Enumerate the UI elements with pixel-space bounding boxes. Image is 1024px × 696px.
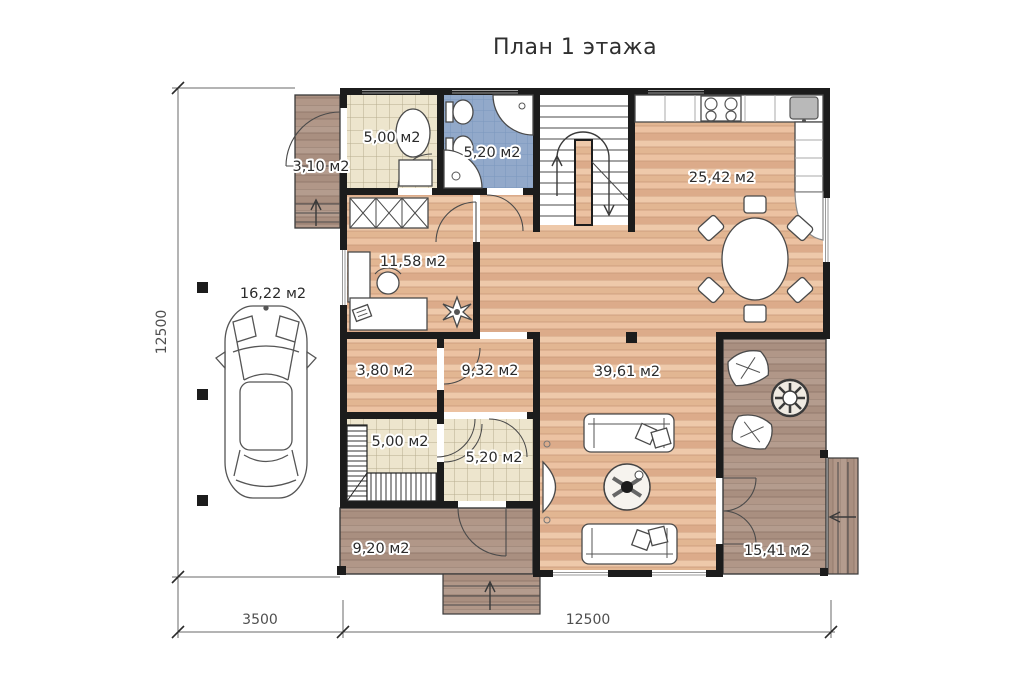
room-label-carport: 16,22 м2: [240, 286, 306, 302]
carport-post: [197, 282, 208, 293]
utility-fixtures: [396, 109, 432, 186]
sofa-top: [584, 414, 674, 452]
room-label-office: 11,58 м2: [380, 254, 446, 270]
window-dining: [826, 198, 829, 262]
back-steps: [443, 574, 540, 614]
carport-post: [197, 495, 208, 506]
sofa-bottom: [582, 524, 677, 564]
room-label-terrace-front: 15,41 м2: [744, 543, 810, 559]
desk-side: [348, 252, 370, 302]
floor-plan-drawing: 3,10 м2 5,00 м2 5,20 м2 25,42 м2 11,58 м…: [0, 0, 1024, 696]
dim-house-width: 12500: [566, 612, 611, 628]
dim-total-depth: 12500: [154, 310, 170, 355]
carport-post: [197, 389, 208, 400]
room-label-terrace-back: 9,20 м2: [352, 541, 409, 557]
window-office: [343, 250, 346, 305]
toilet: [446, 100, 473, 124]
window-living-1: [553, 573, 608, 576]
floor-plan-page: 3,10 м2 5,00 м2 5,20 м2 25,42 м2 11,58 м…: [0, 0, 1024, 696]
sink: [790, 97, 818, 123]
room-label-utility: 5,00 м2: [363, 130, 420, 146]
room-label-kitchen: 25,42 м2: [689, 170, 755, 186]
room-label-living: 39,61 м2: [594, 364, 660, 380]
room-label-hallway: 9,32 м2: [461, 363, 518, 379]
fireplace: [604, 464, 650, 510]
wicker-table: [772, 380, 808, 416]
window-living-2: [652, 573, 706, 576]
stove: [701, 96, 741, 121]
dim-carport-width: 3500: [242, 612, 278, 628]
room-label-hall: 5,20 м2: [465, 450, 522, 466]
wardrobe: [350, 198, 428, 228]
room-label-porch: 3,10 м2: [292, 159, 349, 175]
car: [216, 306, 316, 498]
room-label-storage: 3,80 м2: [356, 363, 413, 379]
carport: [197, 282, 316, 506]
room-label-bathroom: 5,20 м2: [463, 145, 520, 161]
page-title: План 1 этажа: [493, 35, 657, 60]
room-label-boiler: 5,00 м2: [371, 434, 428, 450]
